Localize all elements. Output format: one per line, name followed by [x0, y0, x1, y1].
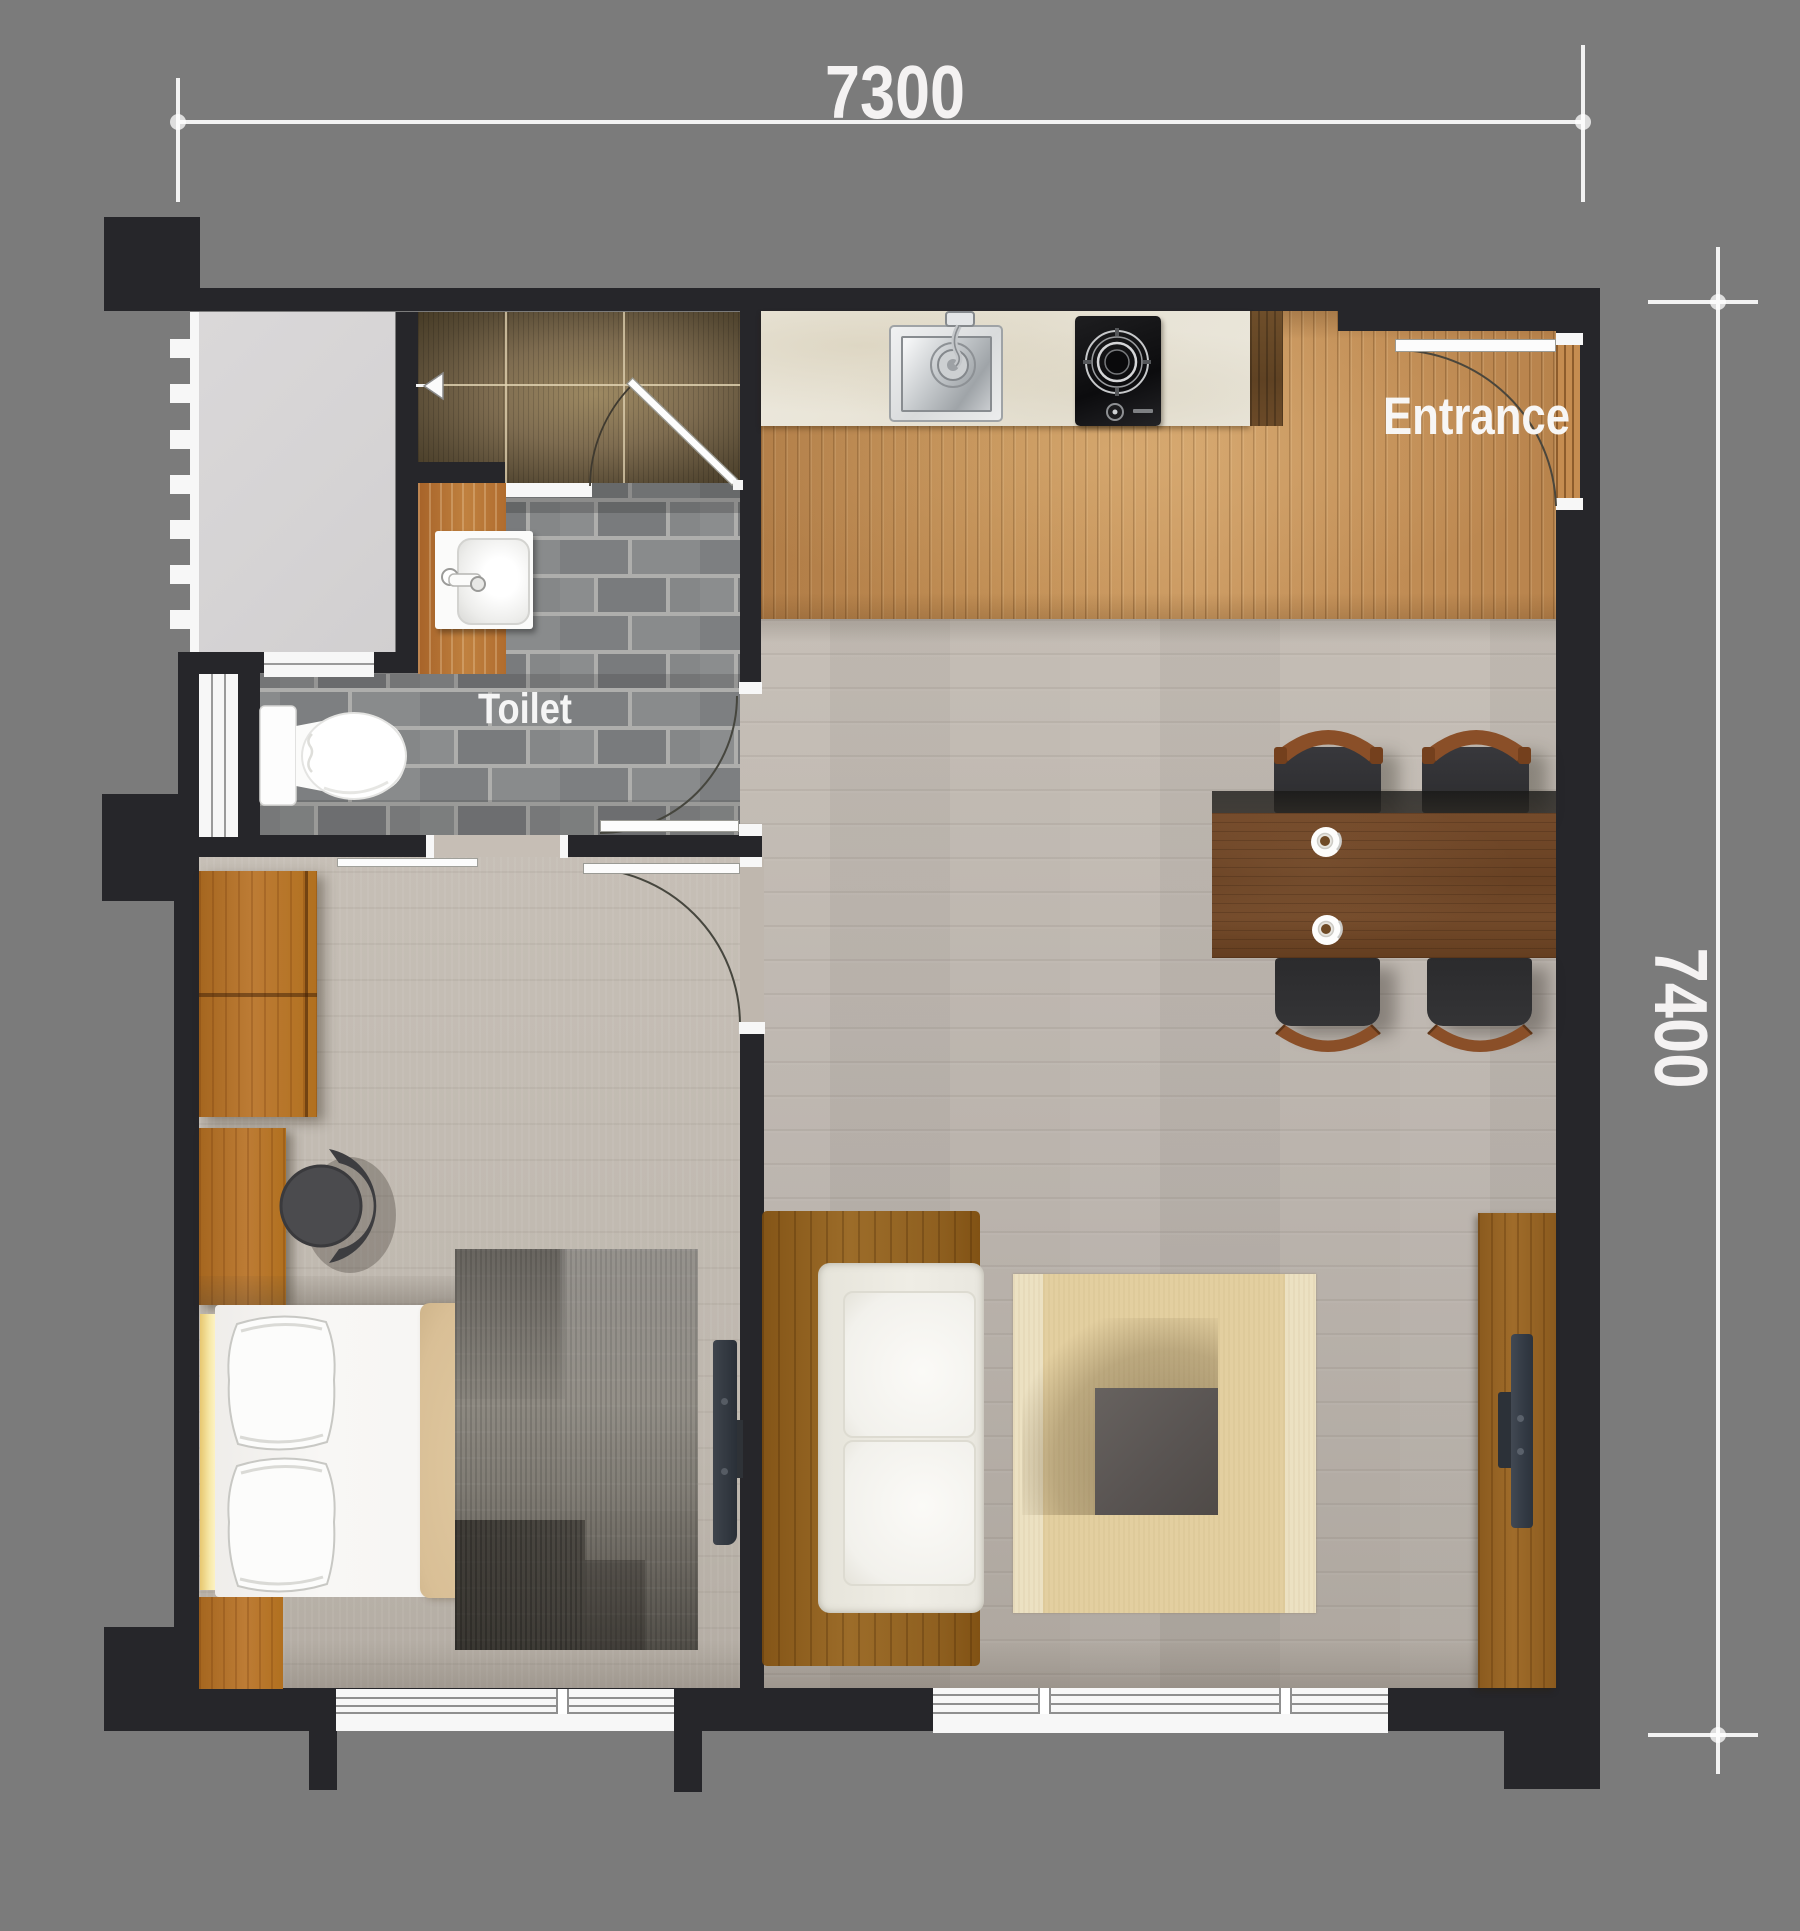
- svg-text:Toilet: Toilet: [478, 685, 572, 733]
- svg-text:7400: 7400: [1639, 948, 1723, 1089]
- svg-text:Entrance: Entrance: [1383, 387, 1570, 446]
- svg-text:7300: 7300: [825, 50, 965, 130]
